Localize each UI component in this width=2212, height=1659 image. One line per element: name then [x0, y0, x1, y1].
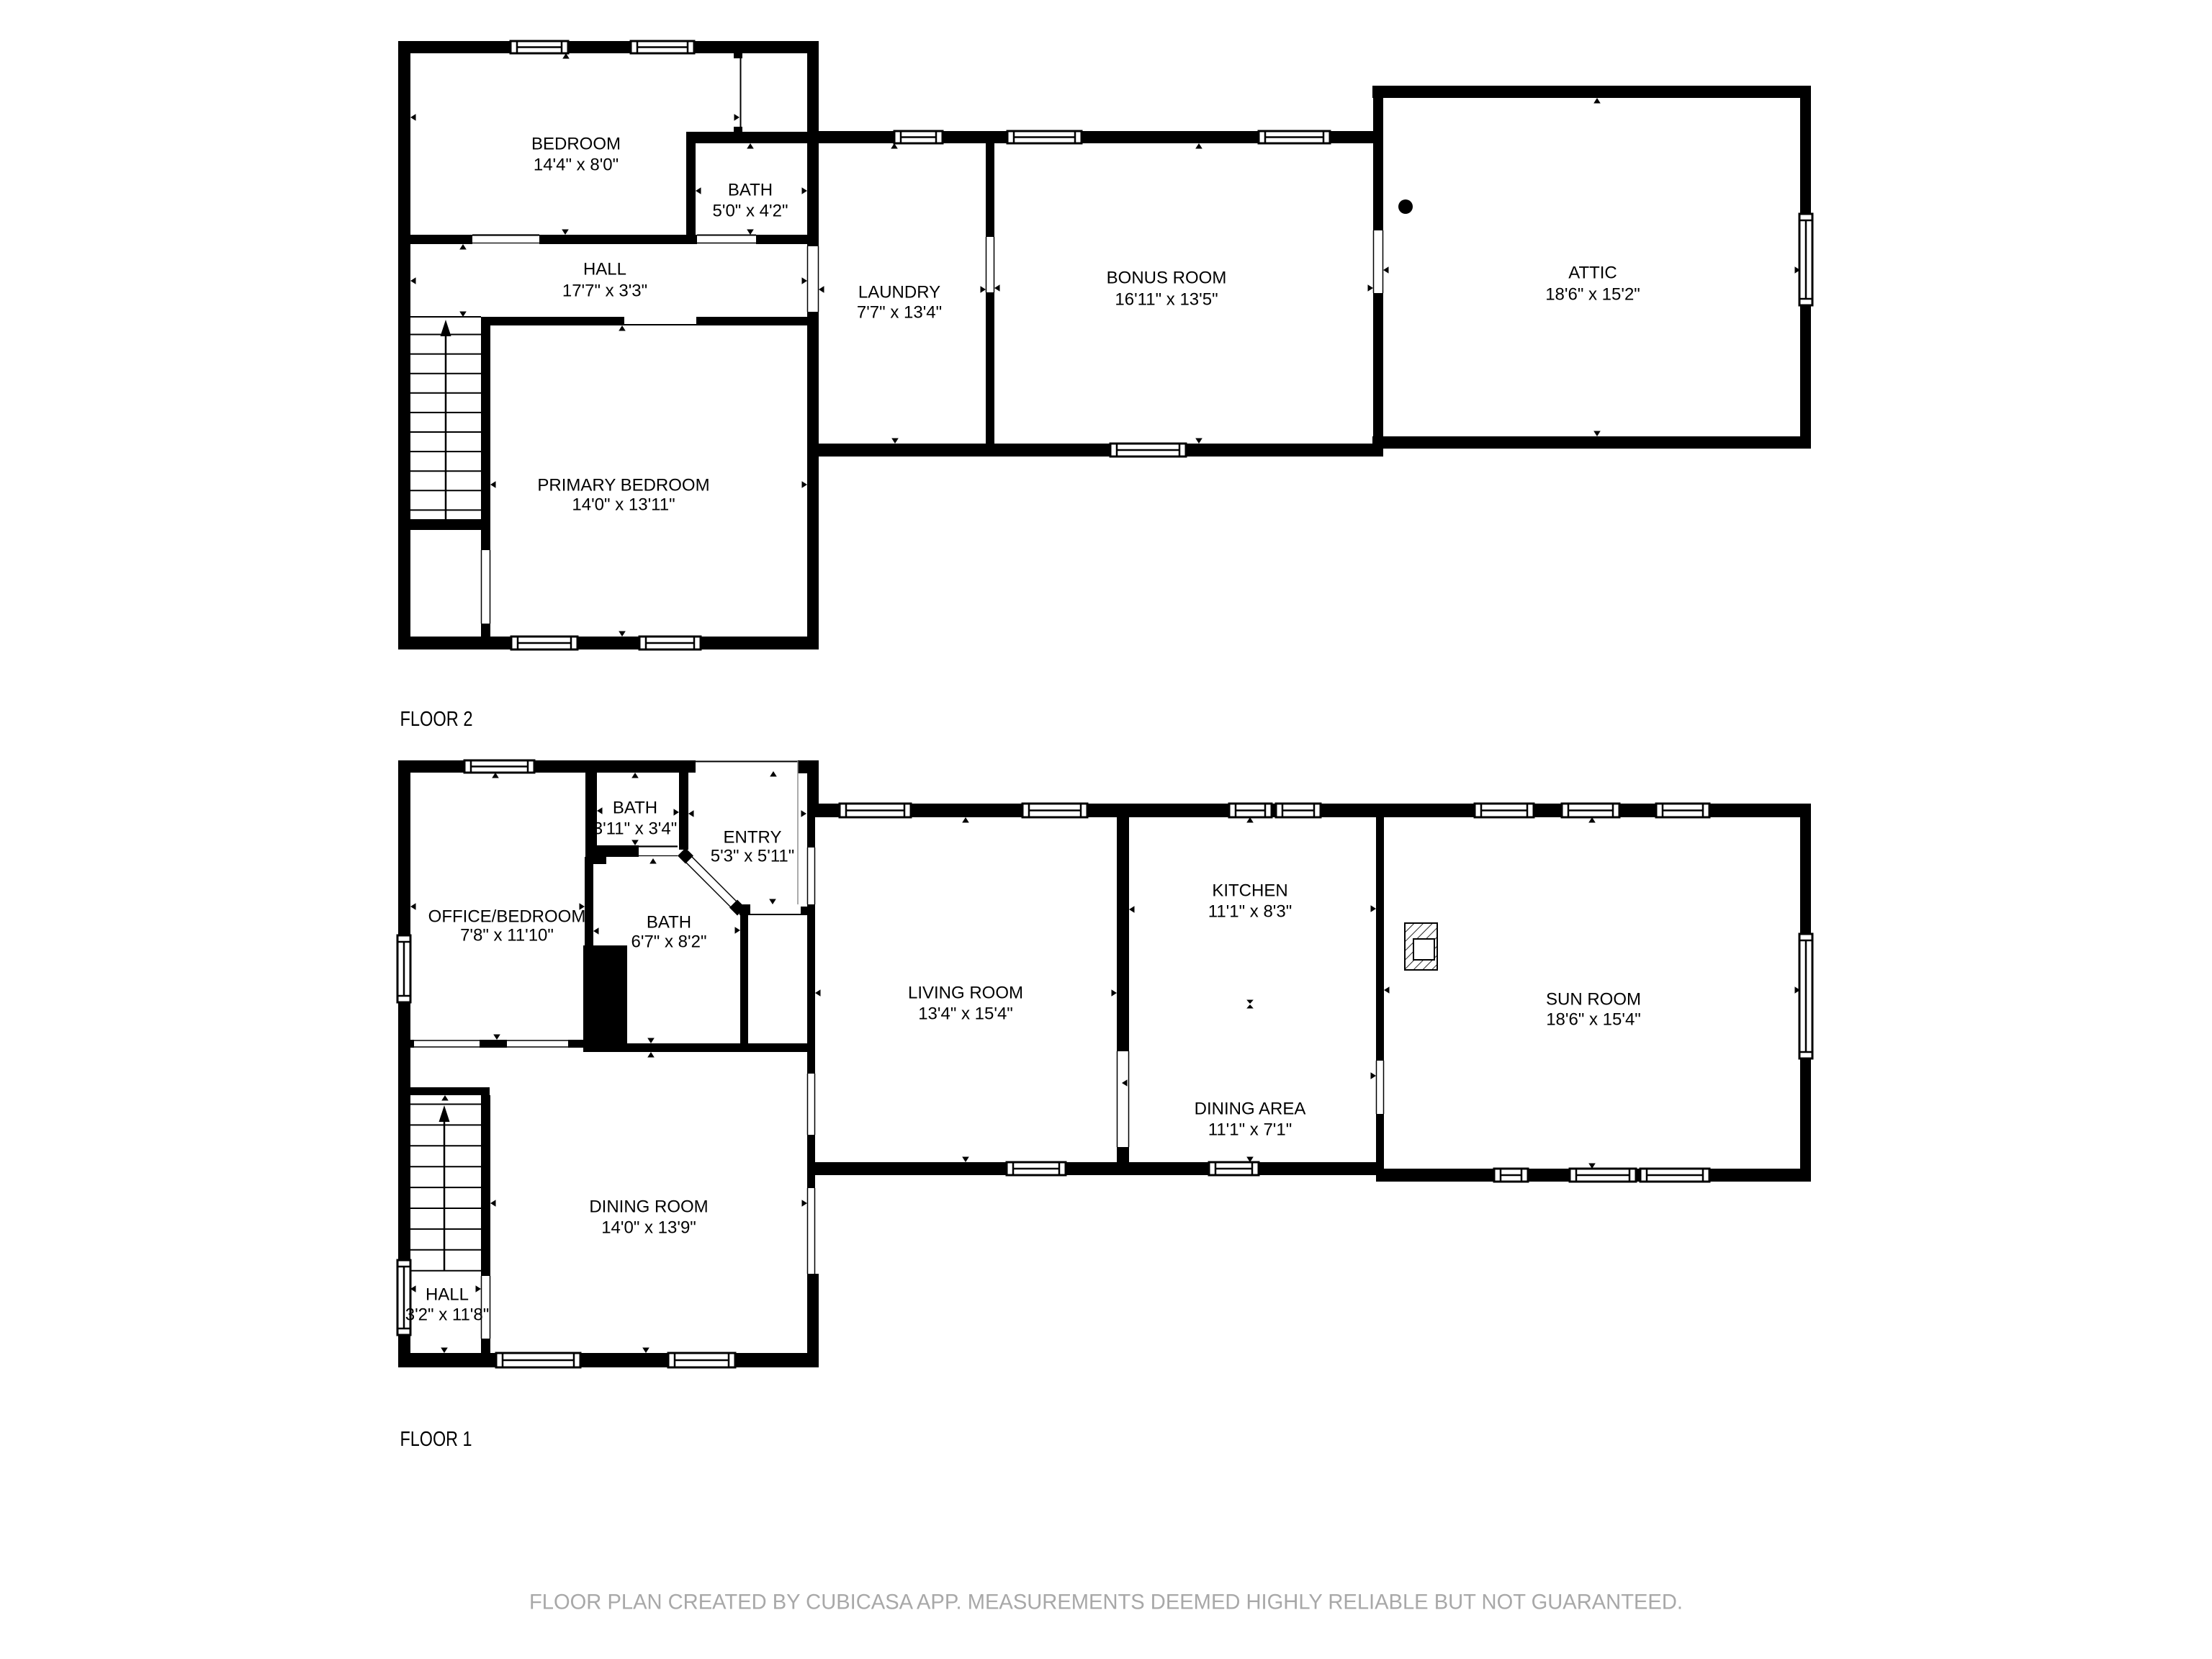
svg-text:ATTIC: ATTIC [1568, 264, 1617, 283]
svg-text:DINING ROOM: DINING ROOM [589, 1197, 708, 1217]
svg-text:BATH: BATH [613, 799, 657, 818]
svg-text:KITCHEN: KITCHEN [1212, 881, 1287, 901]
svg-text:17'7" x 3'3": 17'7" x 3'3" [562, 282, 647, 301]
svg-text:5'3" x 5'11": 5'3" x 5'11" [711, 847, 795, 866]
svg-text:16'11" x 13'5": 16'11" x 13'5" [1115, 290, 1218, 310]
svg-text:FLOOR 2: FLOOR 2 [400, 708, 473, 731]
svg-text:11'1" x 7'1": 11'1" x 7'1" [1208, 1120, 1292, 1140]
svg-text:HALL: HALL [583, 260, 626, 279]
svg-text:18'6" x 15'2": 18'6" x 15'2" [1545, 285, 1640, 305]
svg-text:6'7" x 8'2": 6'7" x 8'2" [631, 932, 707, 952]
svg-text:5'0" x 4'2": 5'0" x 4'2" [713, 202, 788, 221]
svg-text:14'4" x 8'0": 14'4" x 8'0" [534, 156, 619, 175]
svg-text:PRIMARY BEDROOM: PRIMARY BEDROOM [537, 476, 709, 495]
svg-text:HALL: HALL [426, 1285, 469, 1305]
svg-text:FLOOR 1: FLOOR 1 [400, 1428, 472, 1451]
svg-text:BATH: BATH [728, 181, 773, 200]
svg-text:FLOOR PLAN CREATED BY CUBICASA: FLOOR PLAN CREATED BY CUBICASA APP. MEAS… [529, 1591, 1683, 1614]
svg-text:BEDROOM: BEDROOM [531, 135, 621, 154]
svg-text:7'7" x 13'4": 7'7" x 13'4" [857, 303, 942, 323]
svg-text:ENTRY: ENTRY [724, 828, 782, 848]
svg-text:BONUS ROOM: BONUS ROOM [1107, 269, 1227, 288]
svg-text:18'6" x 15'4": 18'6" x 15'4" [1546, 1010, 1641, 1030]
svg-text:14'0" x 13'9": 14'0" x 13'9" [601, 1218, 696, 1238]
svg-text:SUN ROOM: SUN ROOM [1546, 990, 1641, 1010]
svg-text:3'2" x 11'8": 3'2" x 11'8" [405, 1305, 490, 1325]
svg-text:LAUNDRY: LAUNDRY [858, 283, 940, 302]
svg-text:14'0" x 13'11": 14'0" x 13'11" [572, 495, 675, 515]
svg-text:13'4" x 15'4": 13'4" x 15'4" [918, 1004, 1013, 1024]
svg-text:11'1" x 8'3": 11'1" x 8'3" [1208, 902, 1292, 922]
svg-text:LIVING ROOM: LIVING ROOM [908, 984, 1023, 1003]
svg-text:BATH: BATH [647, 913, 691, 932]
svg-text:3'11" x 3'4": 3'11" x 3'4" [593, 819, 678, 839]
svg-text:DINING AREA: DINING AREA [1195, 1100, 1306, 1119]
svg-text:OFFICE/BEDROOM: OFFICE/BEDROOM [428, 907, 586, 927]
svg-text:7'8" x 11'10": 7'8" x 11'10" [460, 926, 554, 945]
